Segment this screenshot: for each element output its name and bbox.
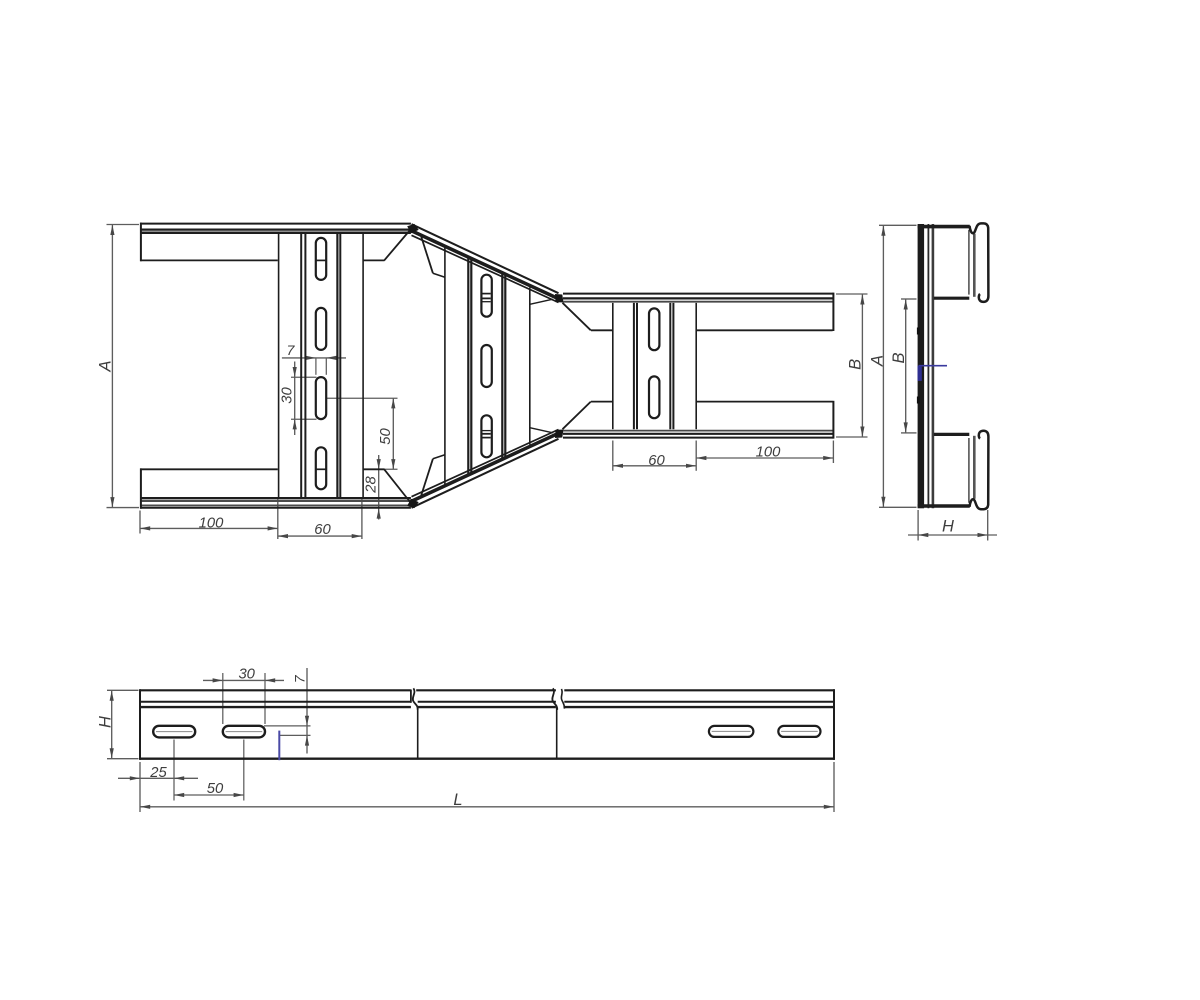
svg-text:H: H <box>942 517 954 535</box>
svg-text:B: B <box>846 359 864 370</box>
svg-text:L: L <box>453 791 462 809</box>
svg-text:30: 30 <box>238 667 255 683</box>
svg-text:7: 7 <box>292 674 308 683</box>
svg-text:B: B <box>890 352 908 363</box>
svg-text:28: 28 <box>364 476 380 494</box>
svg-text:25: 25 <box>149 765 167 781</box>
svg-text:50: 50 <box>378 428 394 445</box>
svg-text:A: A <box>868 355 886 367</box>
svg-text:30: 30 <box>279 387 295 404</box>
svg-text:60: 60 <box>314 522 331 538</box>
svg-text:7: 7 <box>287 343 296 359</box>
svg-text:100: 100 <box>199 515 224 531</box>
svg-text:60: 60 <box>648 453 665 469</box>
svg-text:A: A <box>97 360 115 372</box>
svg-text:H: H <box>96 716 114 728</box>
svg-text:50: 50 <box>207 781 224 797</box>
svg-text:100: 100 <box>756 444 781 460</box>
